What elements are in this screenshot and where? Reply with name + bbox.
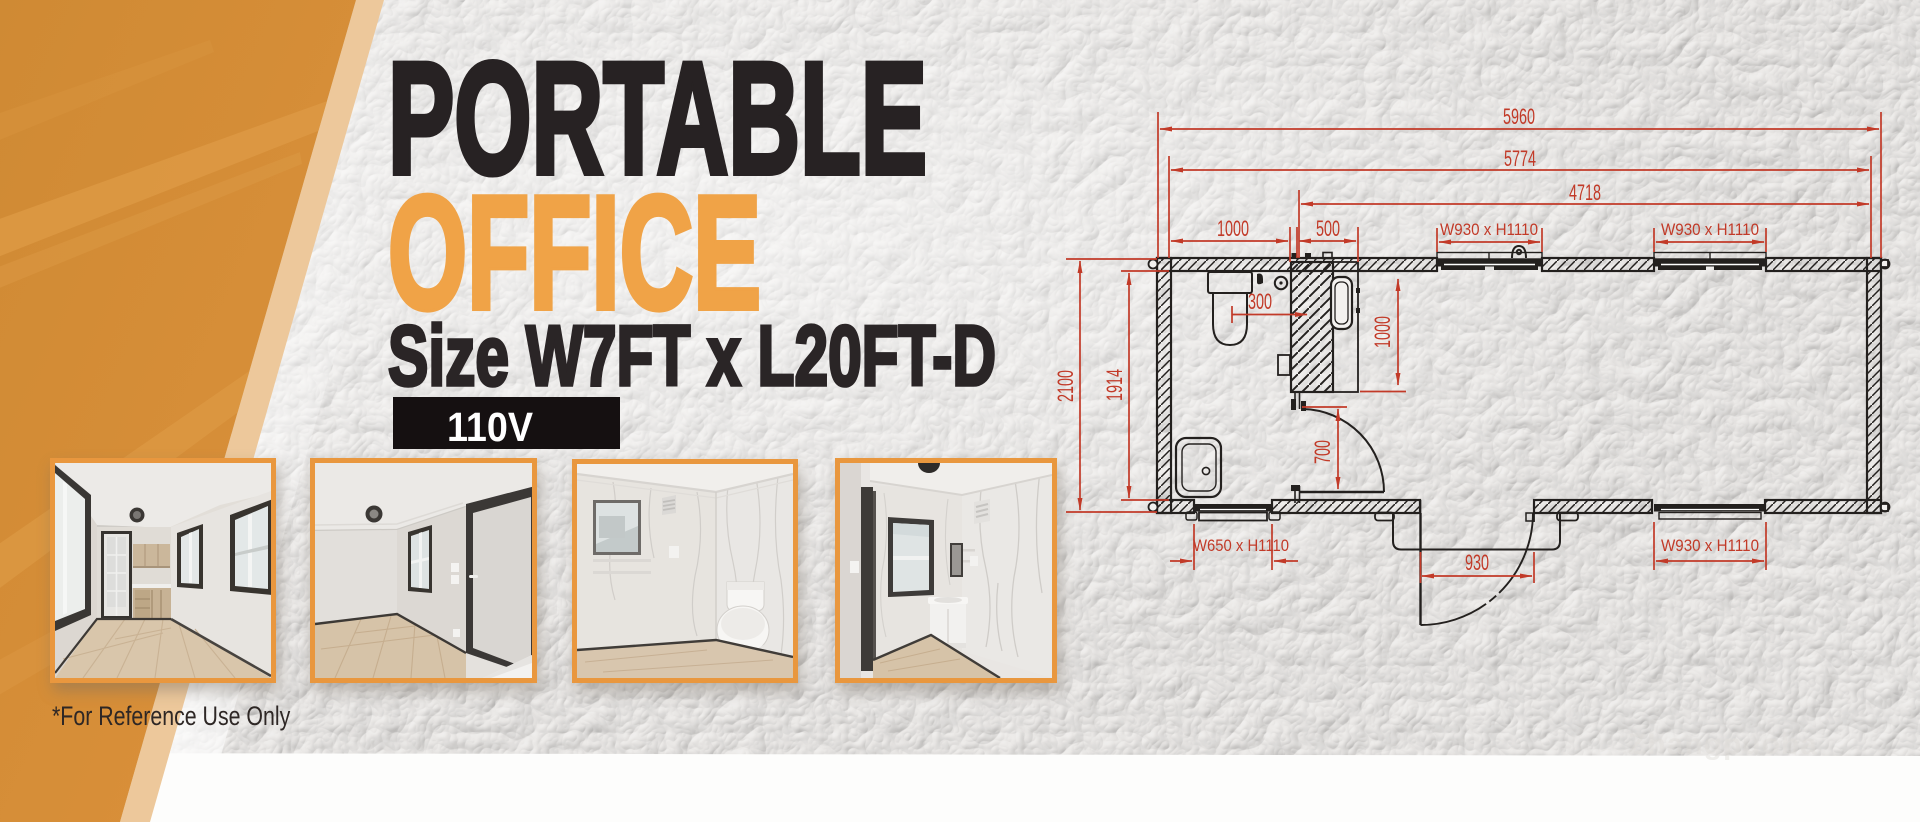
- svg-text:4718: 4718: [1569, 180, 1601, 205]
- svg-text:1000: 1000: [1217, 216, 1249, 241]
- svg-text:W930 x H1110: W930 x H1110: [1440, 220, 1538, 239]
- svg-text:300: 300: [1248, 289, 1272, 314]
- svg-text:5960: 5960: [1503, 104, 1535, 129]
- svg-text:5774: 5774: [1504, 146, 1536, 171]
- svg-text:W930 x H1110: W930 x H1110: [1661, 220, 1759, 239]
- svg-text:W930 x H1110: W930 x H1110: [1661, 536, 1759, 555]
- svg-text:500: 500: [1316, 216, 1340, 241]
- svg-text:1000: 1000: [1370, 316, 1395, 348]
- svg-text:Size W7FT x L20FT-D: Size W7FT x L20FT-D: [388, 309, 996, 404]
- svg-text:700: 700: [1310, 440, 1335, 464]
- svg-text:2100: 2100: [1053, 370, 1078, 402]
- svg-text:W650 x H1110: W650 x H1110: [1193, 536, 1289, 555]
- svg-text:930: 930: [1465, 550, 1489, 575]
- svg-text:1914: 1914: [1102, 369, 1127, 401]
